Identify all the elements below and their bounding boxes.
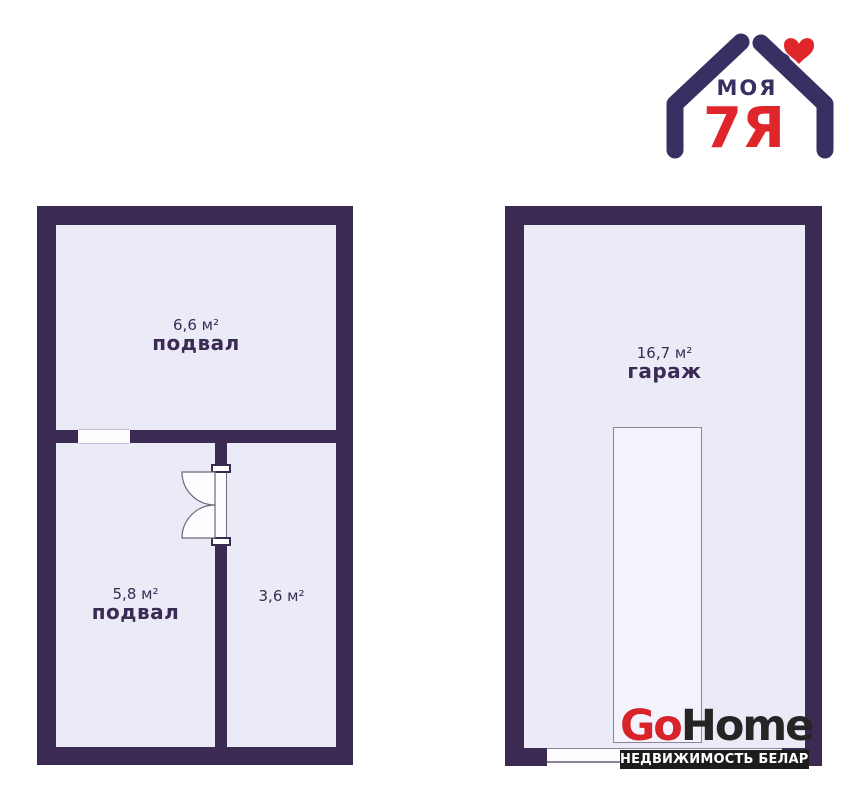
left-plan-wall-opening [78,429,130,444]
brand-logo: МОЯ 7Я [658,20,852,168]
room-basement-left-label: 5,8 м² подвал [56,586,215,624]
gohome-word-go: Go [620,701,681,751]
gohome-word-home: Home [681,701,813,751]
room-garage-label: 16,7 м² гараж [524,345,805,383]
room-area: 3,6 м² [227,588,336,604]
gohome-wordmark: GoHome [620,705,812,748]
room-name: подвал [56,602,215,624]
logo-word-main: 7Я [703,96,785,161]
double-door-swing-icon [170,460,240,552]
door-leaf-top [182,472,215,505]
gohome-tagline-banner: НЕДВИЖИМОСТЬ БЕЛАРУСИ [620,750,809,769]
garage-inspection-pit [613,427,702,743]
floorplan-canvas: МОЯ 7Я 6,6 м² подвал 5,8 м² подвал 3,6 м… [0,0,856,800]
room-name: гараж [524,361,805,383]
room-name: подвал [56,333,336,355]
door-leaf-bottom [182,505,215,538]
room-small-label: 3,6 м² [227,588,336,604]
logo-hand-icon [770,52,784,60]
room-basement-top-label: 6,6 м² подвал [56,317,336,355]
gohome-watermark: GoHome НЕДВИЖИМОСТЬ БЕЛАРУСИ [620,705,812,769]
left-plan-vertical-wall-bottom [215,545,227,747]
